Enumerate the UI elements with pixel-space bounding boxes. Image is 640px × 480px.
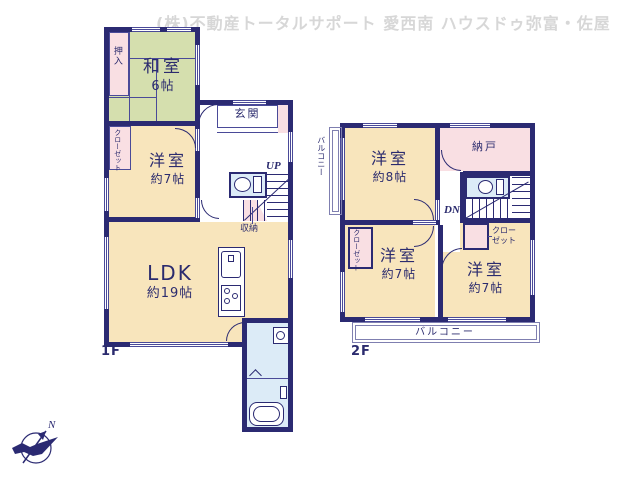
door-opening bbox=[435, 200, 440, 220]
window bbox=[132, 27, 160, 32]
window bbox=[167, 27, 191, 32]
label-genkan: 玄関 bbox=[217, 108, 278, 120]
company-watermark: (株)不動産トータルサポート 愛西南 ハウスドゥ弥富・佐屋 bbox=[156, 10, 611, 34]
wall-segment bbox=[460, 218, 535, 223]
toilet-tank-icon bbox=[496, 179, 504, 195]
compass-north-label: N bbox=[47, 419, 56, 431]
label-yoshitsu-1f: 洋室 約7帖 bbox=[133, 152, 203, 186]
burner-icon bbox=[224, 288, 230, 294]
toilet-bowl-icon bbox=[478, 180, 493, 194]
window bbox=[363, 123, 397, 128]
toilet-bowl-icon bbox=[234, 177, 251, 192]
washbasin-bowl-icon bbox=[276, 331, 285, 340]
window bbox=[340, 272, 345, 312]
label-balcony-bottom: バルコニー bbox=[395, 327, 495, 338]
compass-icon: N bbox=[10, 414, 62, 474]
toilet-tank-icon bbox=[253, 176, 262, 193]
label-yoshitsu8: 洋室 約8帖 bbox=[355, 150, 425, 184]
door-opening bbox=[413, 220, 436, 225]
bathtub-inner-icon bbox=[253, 406, 280, 422]
window bbox=[288, 132, 293, 162]
window bbox=[288, 240, 293, 278]
window bbox=[104, 237, 109, 309]
label-balcony-left: バルコニー bbox=[316, 136, 325, 176]
tatami-line bbox=[109, 97, 156, 98]
wall-segment bbox=[438, 225, 443, 322]
shower-unit-icon bbox=[280, 386, 287, 399]
entrance-door bbox=[233, 100, 266, 105]
wall-segment bbox=[460, 172, 465, 223]
kitchen-faucet-icon bbox=[228, 255, 234, 262]
shuno-pointer-line bbox=[252, 207, 253, 224]
shoe-cabinet bbox=[278, 105, 288, 133]
label-oshiire: 押入 bbox=[111, 46, 121, 66]
door-opening bbox=[195, 198, 200, 218]
door-arc bbox=[198, 104, 218, 125]
balcony-left-inner bbox=[332, 130, 339, 212]
window bbox=[104, 178, 109, 211]
window bbox=[530, 240, 535, 295]
burner-icon bbox=[224, 298, 230, 304]
room-closet-2f-right bbox=[463, 223, 489, 250]
door-arc bbox=[201, 200, 219, 219]
label-closet-2f-right: クロー ゼット bbox=[492, 226, 516, 247]
label-floor1: 1F bbox=[101, 345, 121, 359]
label-closet-1f: クローゼット bbox=[113, 129, 121, 171]
window bbox=[130, 342, 228, 347]
label-shuno: 収納 bbox=[240, 225, 258, 235]
label-nando: 納戸 bbox=[440, 141, 530, 153]
wall-segment bbox=[242, 427, 293, 432]
label-yoshitsu7-right: 洋室 約7帖 bbox=[450, 261, 522, 295]
label-up: UP bbox=[266, 160, 281, 172]
label-washitsu: 和室 6帖 bbox=[131, 58, 195, 94]
label-dn: DN bbox=[444, 204, 460, 216]
stairs-2f-lower bbox=[465, 199, 512, 218]
wall-segment bbox=[242, 318, 293, 323]
tatami-line bbox=[129, 32, 130, 121]
wall-segment bbox=[463, 171, 535, 176]
label-ldk: LDK 約19帖 bbox=[130, 262, 210, 301]
sliding-door bbox=[195, 45, 200, 85]
window bbox=[450, 123, 490, 128]
wall-segment bbox=[104, 217, 200, 222]
label-closet-2f-left: クローゼット bbox=[352, 229, 360, 269]
label-yoshitsu7-left: 洋室 約7帖 bbox=[363, 247, 435, 281]
genkan-step-line bbox=[217, 132, 279, 133]
burner-icon bbox=[232, 293, 238, 299]
wall-segment bbox=[104, 121, 200, 126]
floorplan-image: (株)不動産トータルサポート 愛西南 ハウスドゥ弥富・佐屋 bbox=[0, 0, 640, 480]
label-floor2: 2F bbox=[351, 345, 371, 359]
